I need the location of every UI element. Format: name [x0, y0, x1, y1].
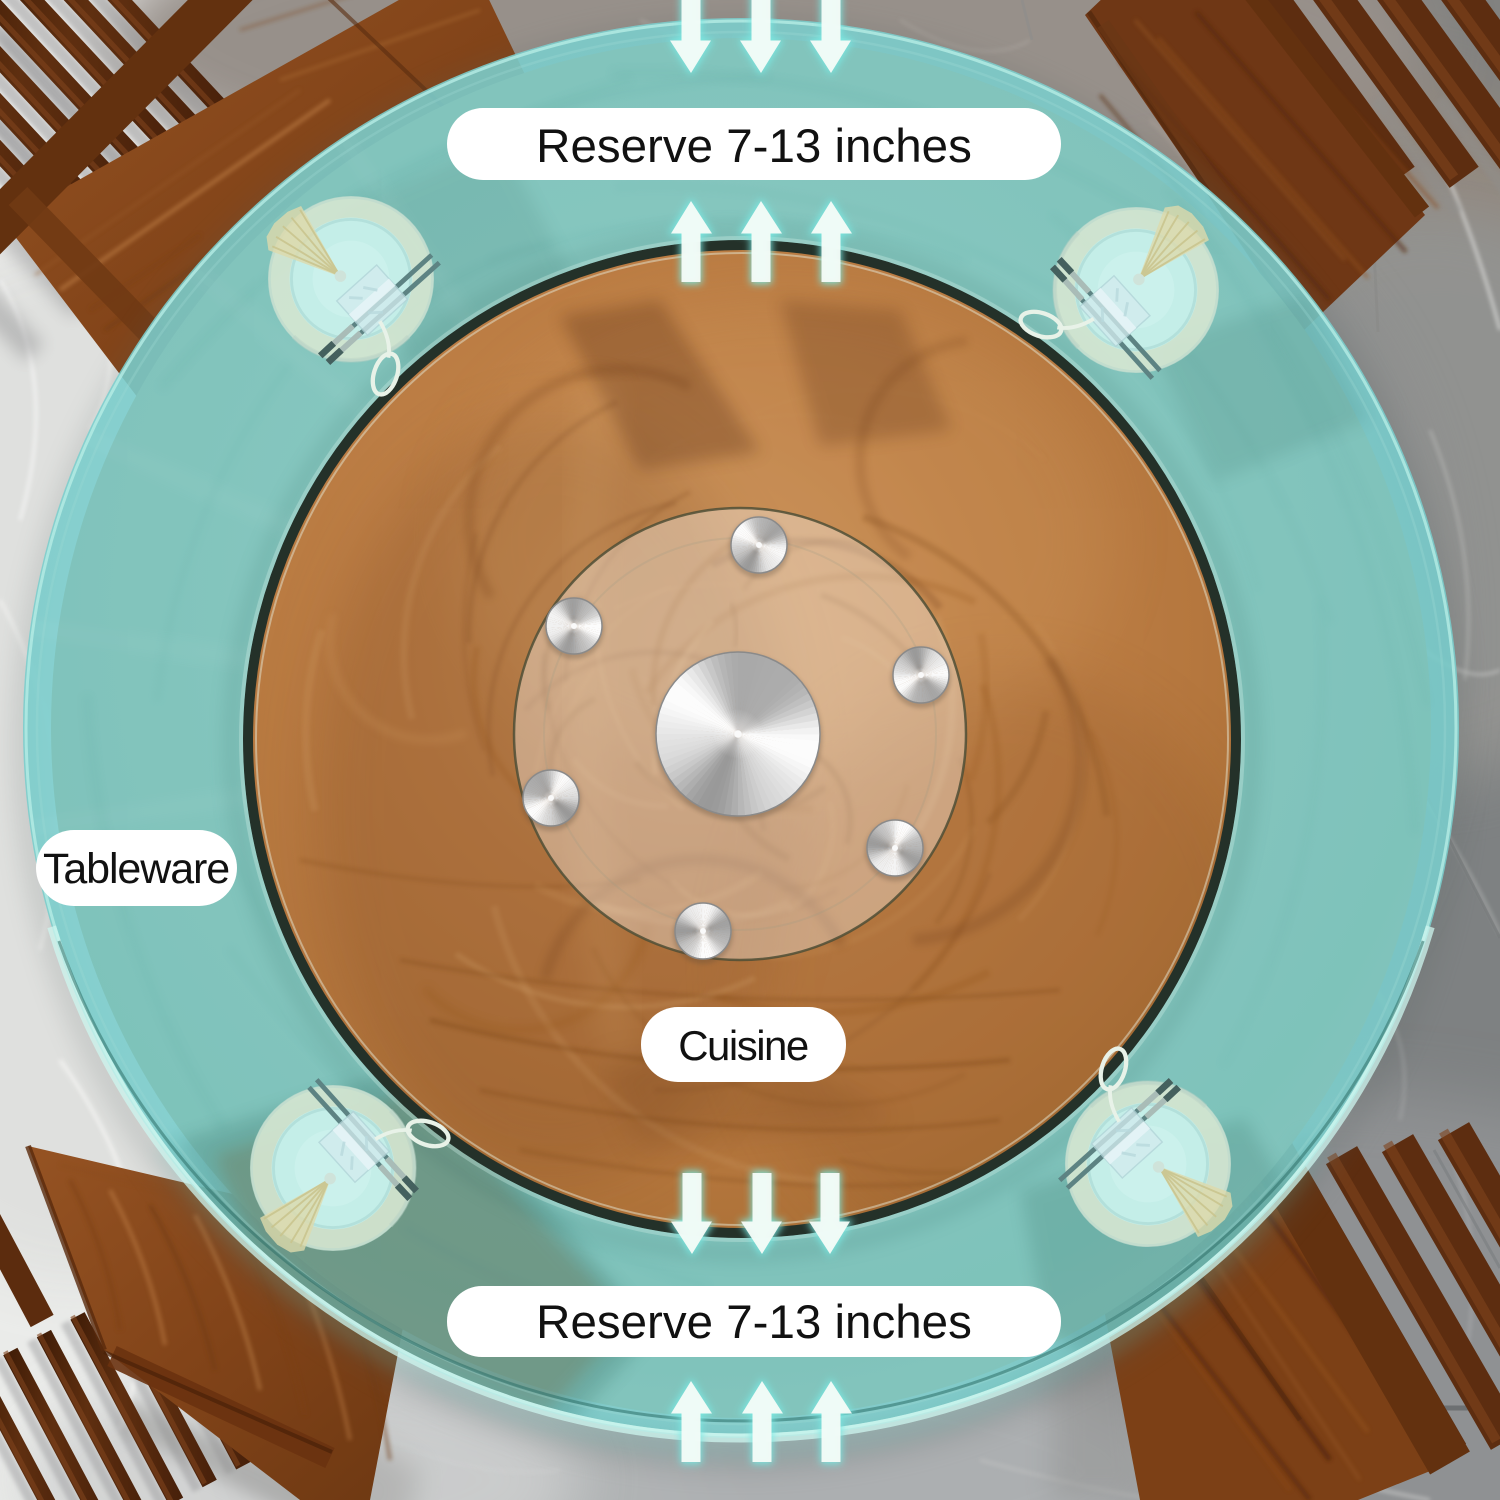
svg-text:Reserve 7-13 inches: Reserve 7-13 inches [536, 1296, 972, 1349]
svg-text:Cuisine: Cuisine [678, 1022, 808, 1069]
svg-text:Reserve 7-13 inches: Reserve 7-13 inches [536, 120, 972, 173]
svg-text:Tableware: Tableware [43, 845, 229, 893]
